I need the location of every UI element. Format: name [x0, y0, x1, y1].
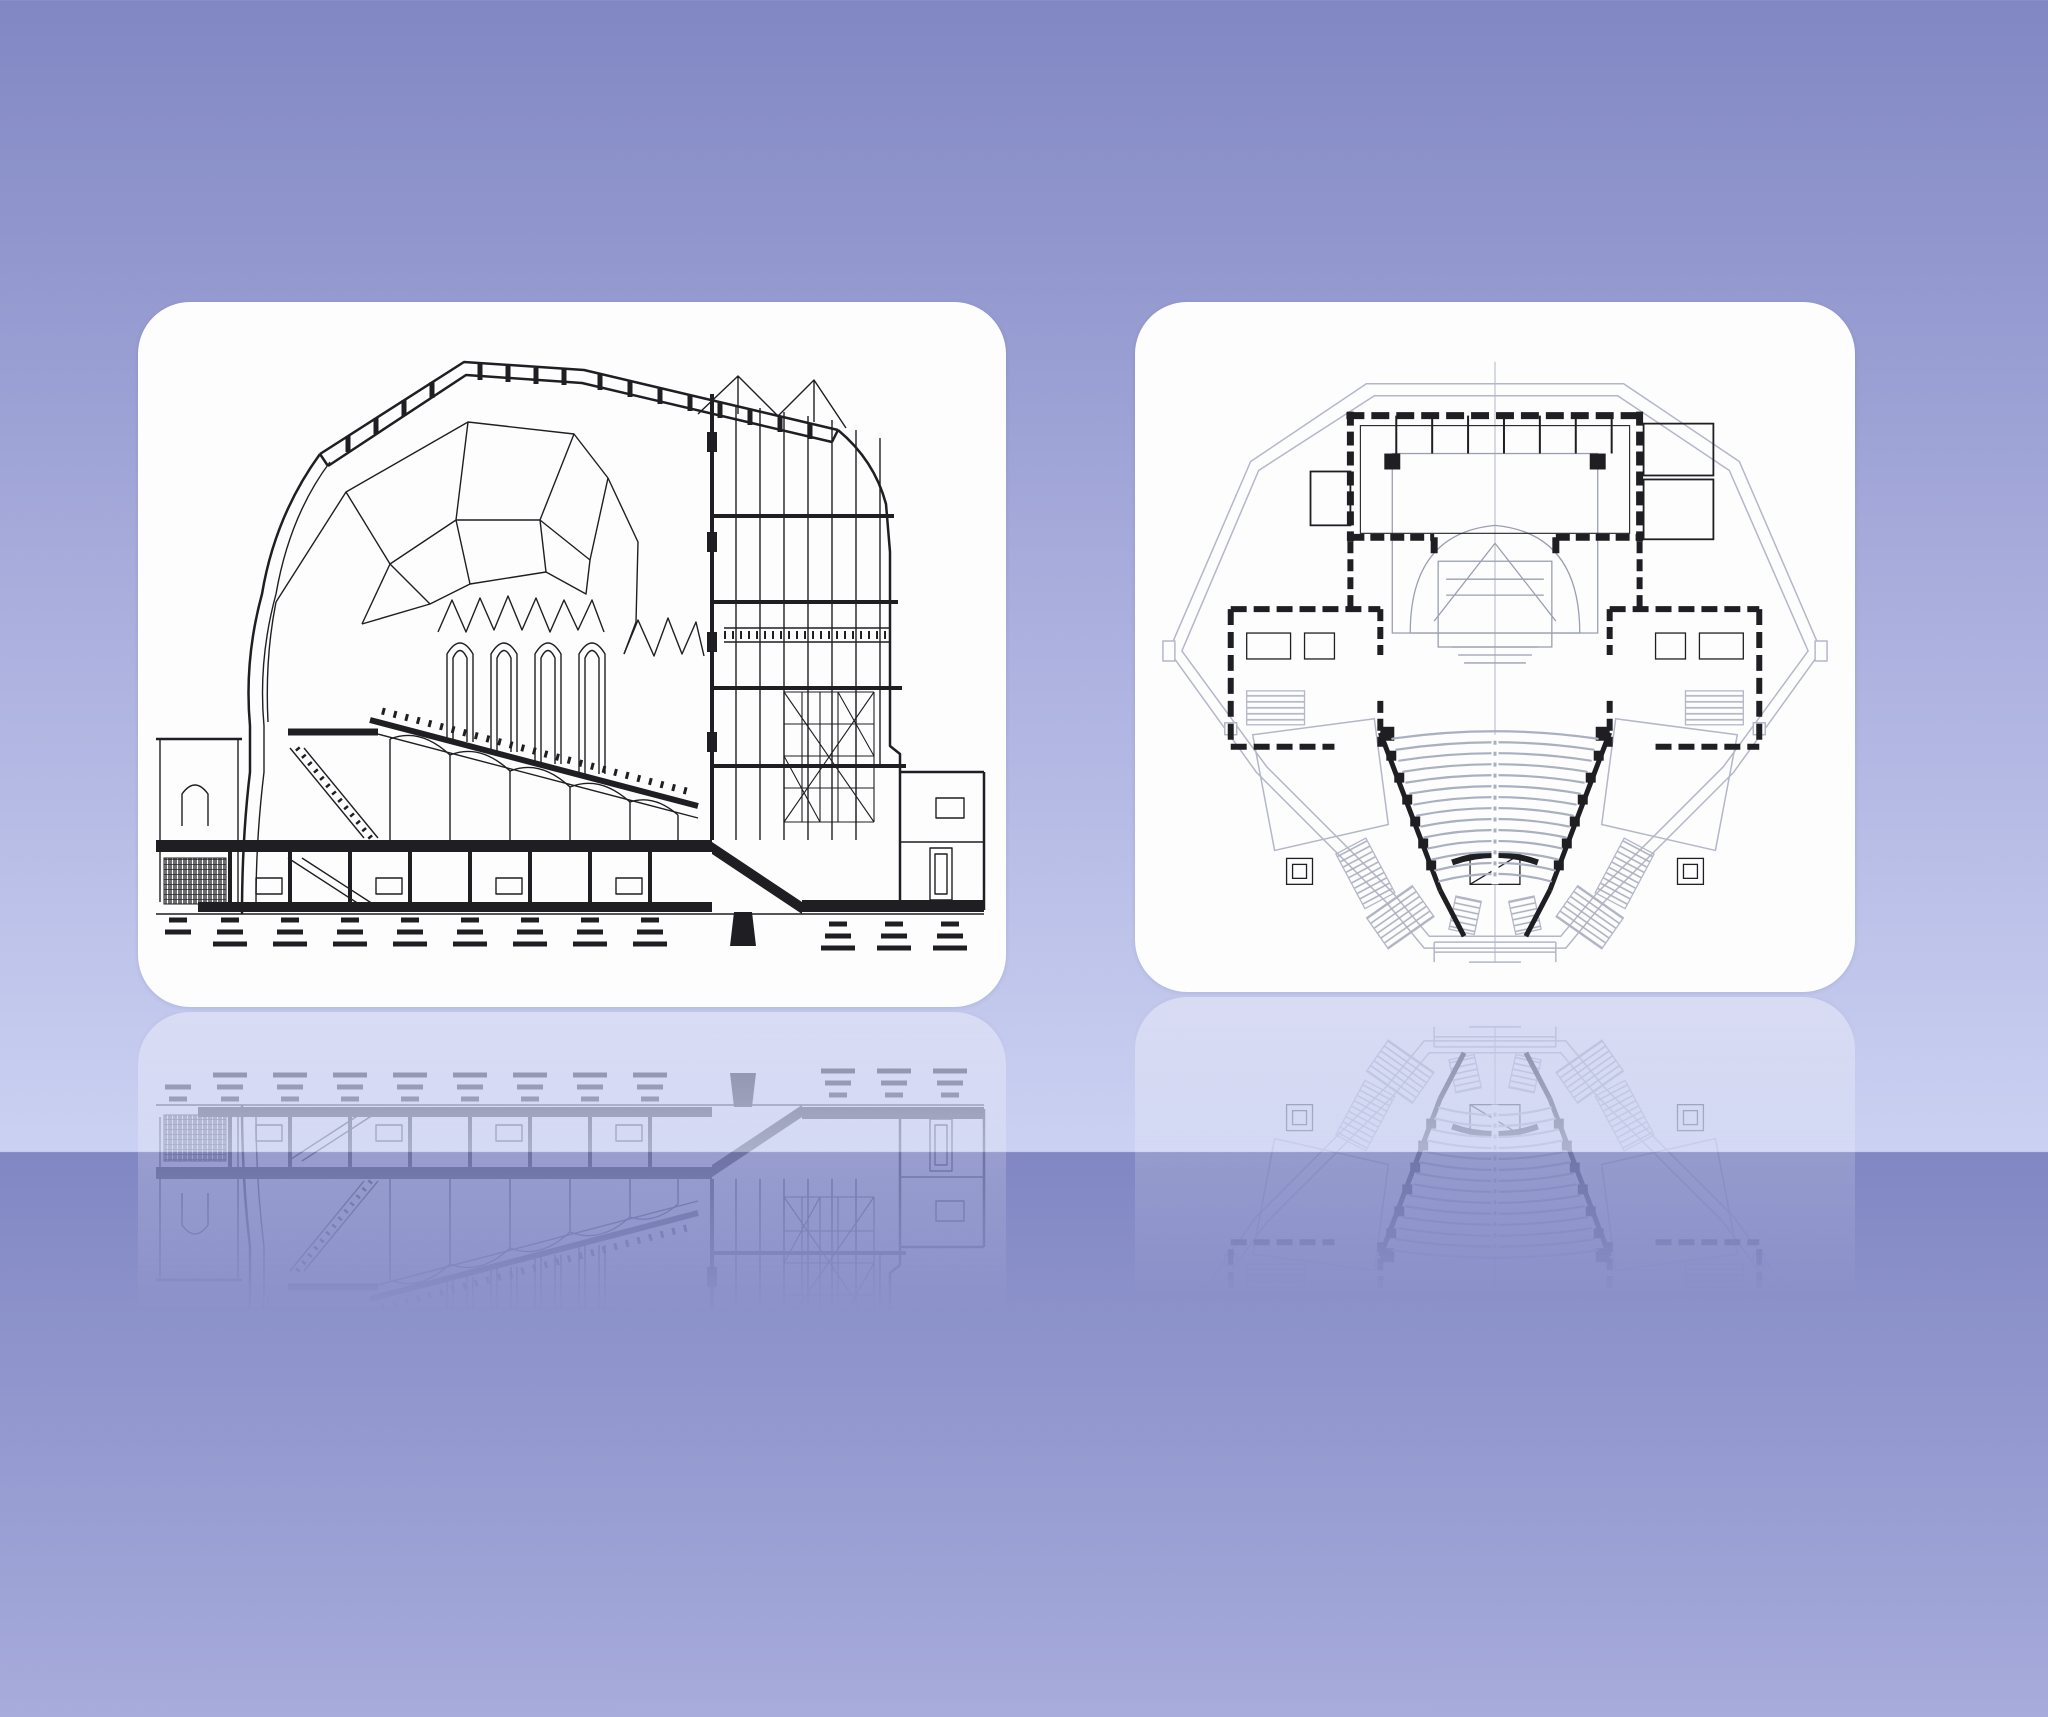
plan-drawing-card: [1135, 302, 1855, 992]
section-drawing-card: [138, 302, 1006, 1007]
section-lattice-truss: [784, 692, 874, 822]
auditorium-floor-plan-drawing: [1135, 302, 1855, 992]
section-drawing-reflection: [138, 1012, 1006, 1717]
building-cross-section-drawing: [138, 302, 1006, 1007]
plan-drawing-reflection: [1135, 997, 1855, 1687]
section-hatched-block: [164, 858, 226, 904]
section-drawing-panel: [138, 302, 1006, 1007]
plan-drawing-panel: [1135, 302, 1855, 992]
section-interior-lines: [156, 376, 984, 914]
section-heavy-structure: [165, 394, 967, 948]
slide-background: [0, 0, 2048, 1152]
